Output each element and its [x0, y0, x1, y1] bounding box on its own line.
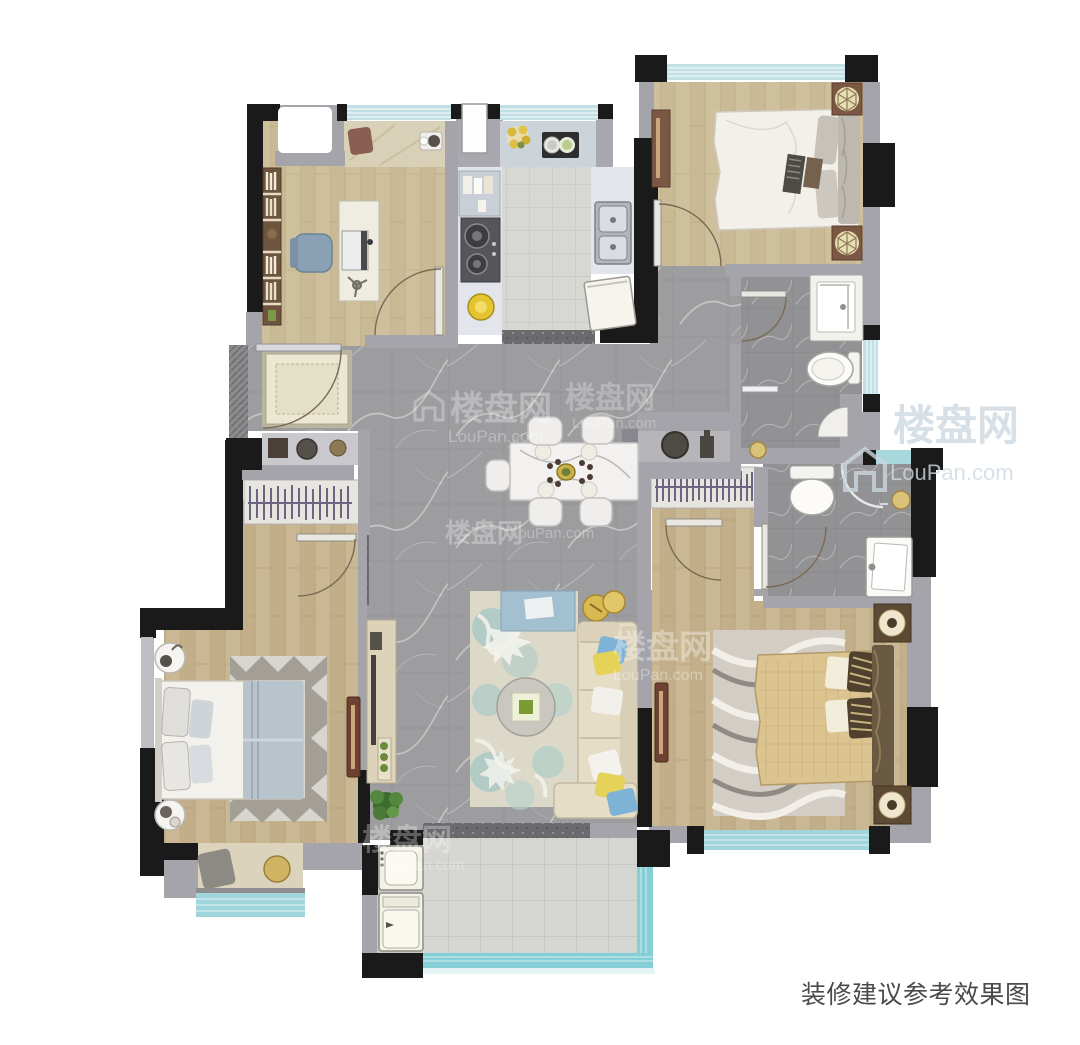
svg-text:LouPan.com: LouPan.com	[510, 525, 594, 542]
svg-text:LouPan.com: LouPan.com	[890, 460, 1014, 485]
svg-text:LouPan.com: LouPan.com	[613, 667, 703, 684]
svg-text:LouPan.com: LouPan.com	[572, 415, 656, 432]
svg-text:LouPan.com: LouPan.com	[380, 857, 464, 874]
svg-text:楼盘网: 楼盘网	[362, 823, 452, 857]
svg-text:楼盘网: 楼盘网	[450, 390, 552, 428]
svg-text:装修建议参考效果图: 装修建议参考效果图	[801, 981, 1031, 1009]
svg-text:楼盘网: 楼盘网	[565, 381, 655, 415]
svg-text:楼盘网: 楼盘网	[893, 402, 1019, 449]
svg-text:LouPan.com: LouPan.com	[448, 427, 543, 446]
svg-text:楼盘网: 楼盘网	[613, 628, 712, 665]
